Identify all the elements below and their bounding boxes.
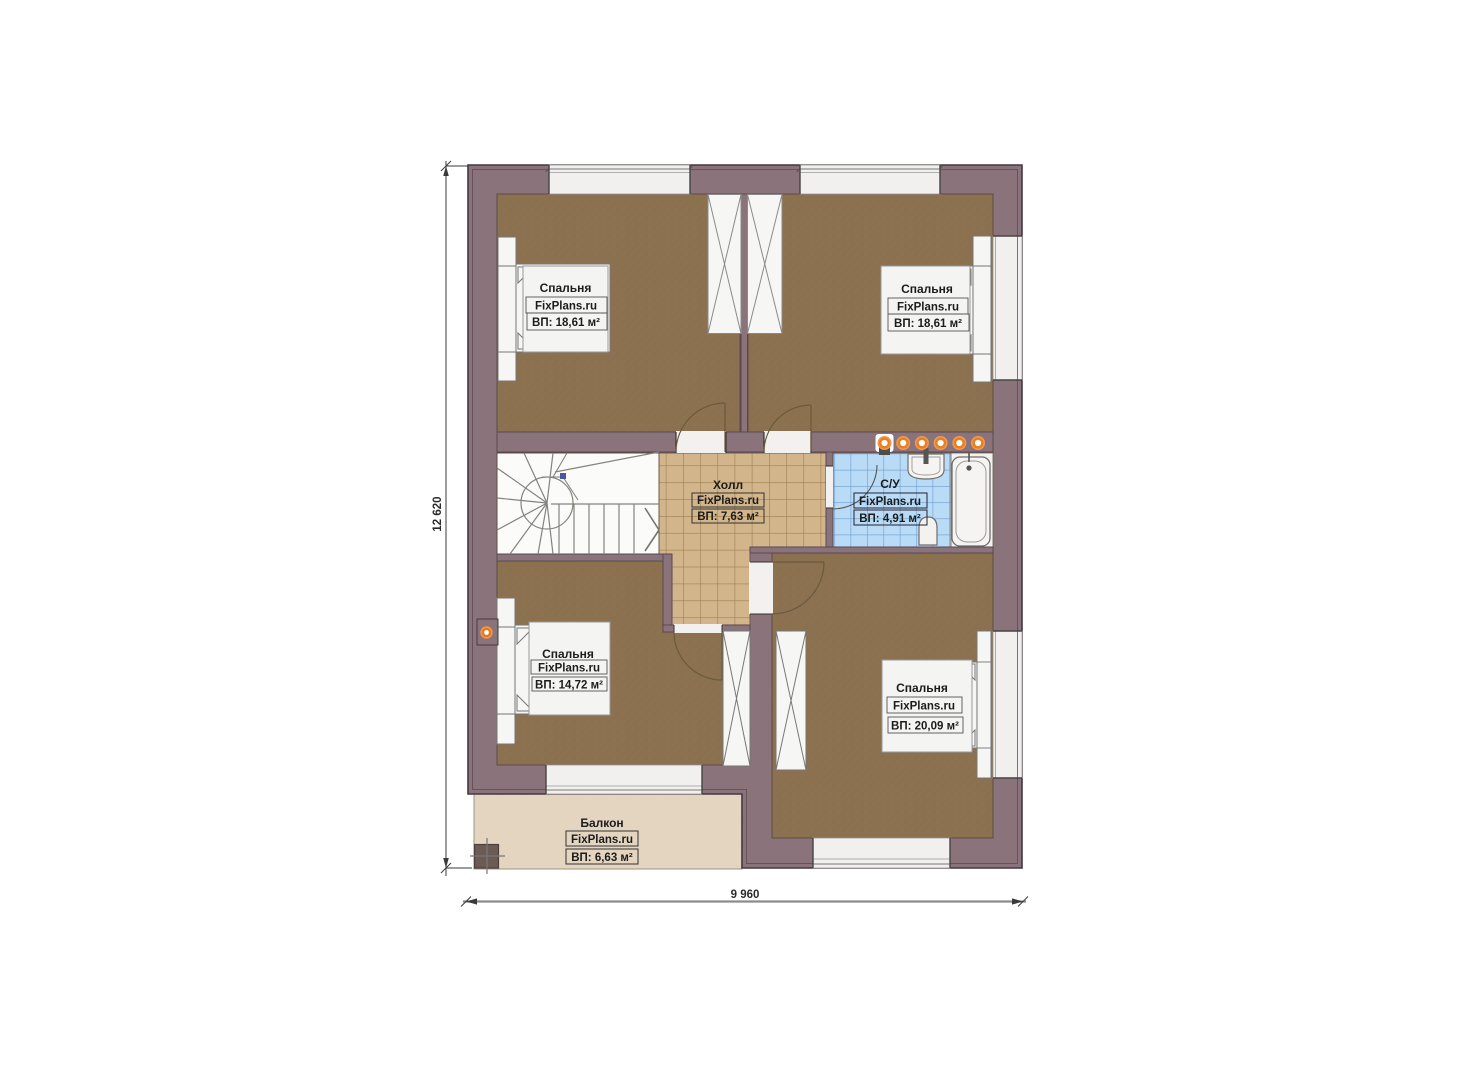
svg-text:Холл: Холл [713, 478, 743, 492]
svg-text:ВП: 7,63 м²: ВП: 7,63 м² [697, 511, 759, 523]
svg-text:ВП: 6,63 м²: ВП: 6,63 м² [571, 852, 633, 864]
svg-text:12 620: 12 620 [432, 496, 444, 531]
svg-text:FixPlans.ru: FixPlans.ru [697, 495, 759, 507]
svg-text:Спальня: Спальня [540, 281, 592, 295]
svg-text:ВП: 14,72 м²: ВП: 14,72 м² [535, 680, 603, 692]
svg-text:9 960: 9 960 [731, 889, 760, 901]
svg-text:ВП: 4,91 м²: ВП: 4,91 м² [859, 513, 921, 525]
svg-text:FixPlans.ru: FixPlans.ru [897, 302, 959, 314]
svg-text:Балкон: Балкон [580, 816, 623, 830]
svg-text:ВП: 18,61 м²: ВП: 18,61 м² [532, 317, 600, 329]
svg-text:FixPlans.ru: FixPlans.ru [538, 663, 600, 675]
svg-text:Спальня: Спальня [901, 282, 953, 296]
svg-text:FixPlans.ru: FixPlans.ru [893, 701, 955, 713]
svg-text:ВП: 20,09 м²: ВП: 20,09 м² [891, 721, 959, 733]
svg-text:ВП: 18,61 м²: ВП: 18,61 м² [894, 318, 962, 330]
svg-text:С/У: С/У [880, 477, 900, 491]
svg-text:Спальня: Спальня [542, 647, 594, 661]
svg-text:FixPlans.ru: FixPlans.ru [535, 301, 597, 313]
svg-text:FixPlans.ru: FixPlans.ru [571, 834, 633, 846]
svg-text:Спальня: Спальня [896, 681, 948, 695]
svg-text:FixPlans.ru: FixPlans.ru [859, 496, 921, 508]
